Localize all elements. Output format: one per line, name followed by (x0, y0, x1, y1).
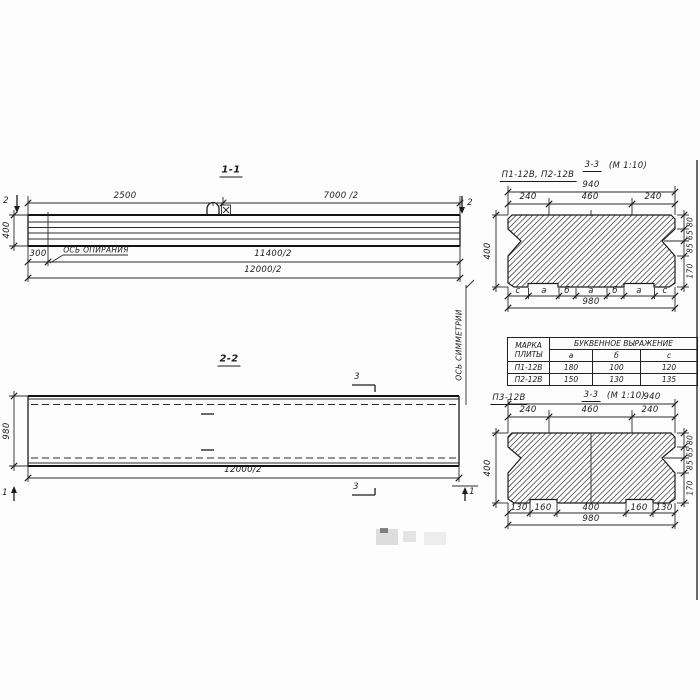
table-cell-a: 150 (550, 374, 593, 386)
view-1-1-linework (9, 195, 465, 282)
scan-artifact (424, 532, 446, 545)
letter-dim-c2: с (663, 286, 668, 296)
letter-dim-b2: б (612, 286, 618, 296)
slab-cross-section-hatched (508, 433, 675, 503)
letter-dim-c1: с (516, 286, 521, 296)
view-1-1-title: 1-1 (220, 165, 243, 178)
cut-mark-2-left-label: 2 (3, 196, 9, 206)
dim-240-right-top: 240 (644, 192, 661, 202)
dim-400-section-top: 400 (483, 242, 493, 259)
dim-940-top: 940 (582, 180, 599, 190)
table-cell-b: 100 (593, 362, 641, 374)
dim-940-bottom: 940 (643, 392, 660, 402)
dim-300: 300 (29, 249, 46, 259)
cut-mark-2-right-label: 2 (467, 198, 473, 208)
table-cell-a: 180 (550, 362, 593, 374)
dim-170-top: 170 (686, 263, 695, 278)
table-row: П1-12В 180 100 120 (508, 362, 698, 374)
dim-400-height: 400 (2, 221, 12, 238)
section-3-3-title-top: 3-3 (583, 160, 602, 172)
dim-400-mid: 400 (582, 503, 599, 513)
dim-400-section-bottom: 400 (483, 459, 493, 476)
symmetry-axis-label: ОСЬ СИММЕТРИИ (455, 309, 464, 380)
letter-dim-a3: а (636, 286, 642, 296)
dim-12000-2-plan: 12000/2 (224, 465, 261, 475)
dim-160-l: 160 (534, 503, 551, 513)
dim-65-top: 65 (686, 230, 695, 240)
table-cell-mark: П2-12В (508, 374, 550, 386)
dim-160-r: 160 (630, 503, 647, 513)
dim-460-bottom: 460 (581, 405, 598, 415)
table-cell-c: 120 (641, 362, 698, 374)
scan-artifact (380, 528, 388, 533)
lifting-loop (207, 202, 231, 215)
engineering-drawing-sheet: 1-1 2500 7000 /2 2 2 400 300 ОСЬ ОПИРАНИ… (0, 0, 700, 700)
table-cell-b: 130 (593, 374, 641, 386)
dim-460-top: 460 (581, 192, 598, 202)
letter-dim-a1: а (541, 286, 547, 296)
support-axis-label: ОСЬ ОПИРАНИЯ (63, 246, 129, 255)
dim-11400-2: 11400/2 (254, 249, 291, 259)
section-p3-label: П3-12В (490, 393, 527, 405)
dim-240-left-top: 240 (519, 192, 536, 202)
dim-2500: 2500 (114, 191, 137, 201)
section-p1-p2-label: П1-12В, П2-12В (500, 170, 577, 182)
table-header-mark: МАРКА ПЛИТЫ (508, 338, 550, 362)
section-3-3-title-bottom: 3-3 (582, 390, 601, 402)
dim-80-bottom: 80 (686, 435, 695, 445)
table-col-b: б (593, 350, 641, 362)
dim-130-l: 130 (510, 503, 527, 513)
dim-80-top: 80 (686, 217, 695, 227)
cut-mark-3-top-label: 3 (354, 372, 360, 382)
slab-spec-table: МАРКА ПЛИТЫ БУКВЕННОЕ ВЫРАЖЕНИЕ а б с П1… (507, 337, 698, 386)
cut-mark-1-left (11, 486, 17, 501)
symmetry-axis-line (466, 280, 474, 405)
table-row: П2-12В 150 130 135 (508, 374, 698, 386)
section-3-3-scale-bottom: (М 1:10) (607, 391, 645, 401)
dim-85-bottom: 85 (686, 460, 695, 470)
slab-cross-section-hatched (508, 215, 675, 287)
section-3-3-scale-top: (М 1:10) (609, 161, 647, 171)
view-2-2-title: 2-2 (218, 354, 241, 367)
dim-7000-2: 7000 /2 (324, 191, 359, 201)
dim-170-bottom: 170 (686, 480, 695, 495)
table-header-expression: БУКВЕННОЕ ВЫРАЖЕНИЕ (550, 338, 698, 350)
table-cell-mark: П1-12В (508, 362, 550, 374)
dim-980-section-top: 980 (582, 297, 599, 307)
cut-mark-1-left-label: 1 (2, 488, 8, 498)
dim-240-right-bottom: 240 (641, 405, 658, 415)
cut-mark-2-left (14, 195, 20, 213)
table-col-a: а (550, 350, 593, 362)
dim-85-top: 85 (686, 243, 695, 253)
dim-980-section-bottom: 980 (582, 514, 599, 524)
letter-dim-a2: а (588, 286, 594, 296)
table-cell-c: 135 (641, 374, 698, 386)
dim-65-bottom: 65 (686, 447, 695, 457)
cut-mark-1-right-label: 1 (469, 487, 475, 497)
table-col-c: с (641, 350, 698, 362)
dim-12000-2: 12000/2 (244, 265, 281, 275)
dim-980-width: 980 (2, 422, 12, 439)
cut-mark-3-top (352, 385, 375, 392)
dim-240-left-bottom: 240 (519, 405, 536, 415)
dim-130-r: 130 (655, 503, 672, 513)
cut-mark-3-bottom-label: 3 (353, 482, 359, 492)
scan-artifact (403, 531, 416, 542)
letter-dim-b1: б (564, 286, 570, 296)
